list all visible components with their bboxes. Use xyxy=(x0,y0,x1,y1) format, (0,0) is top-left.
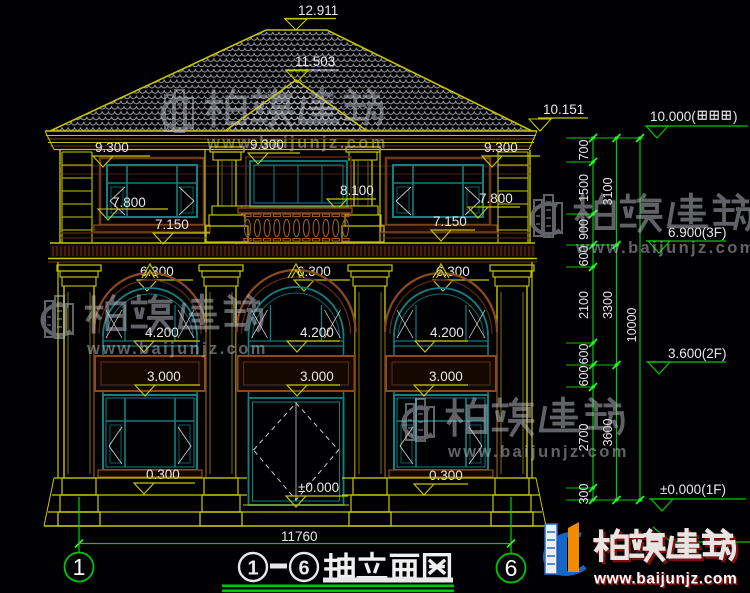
svg-text:6.300: 6.300 xyxy=(436,264,470,279)
svg-text:3300: 3300 xyxy=(601,291,615,319)
svg-text:4.200: 4.200 xyxy=(430,325,464,340)
svg-text:7.150: 7.150 xyxy=(155,217,189,232)
svg-text:3.000: 3.000 xyxy=(429,369,463,384)
svg-text:600: 600 xyxy=(577,344,591,365)
svg-text:7.150: 7.150 xyxy=(433,214,467,229)
svg-text:www.baijunjz.com: www.baijunjz.com xyxy=(86,340,268,358)
svg-text:±0.000: ±0.000 xyxy=(298,480,339,495)
svg-text:1: 1 xyxy=(73,554,86,580)
svg-text:www.baijunjz.com: www.baijunjz.com xyxy=(206,134,388,152)
svg-text:10000: 10000 xyxy=(625,308,639,343)
svg-text:4.200: 4.200 xyxy=(300,325,334,340)
svg-text:7.800: 7.800 xyxy=(112,195,146,210)
svg-text:10.151: 10.151 xyxy=(543,102,584,117)
svg-text:9.300: 9.300 xyxy=(95,140,129,155)
svg-text:700: 700 xyxy=(577,140,591,161)
svg-text:11760: 11760 xyxy=(281,529,318,544)
svg-text:9.300: 9.300 xyxy=(484,140,518,155)
svg-text:3.600(2F): 3.600(2F) xyxy=(668,346,727,361)
svg-text:): ) xyxy=(733,109,738,124)
svg-text:6: 6 xyxy=(505,555,518,581)
svg-text:0.300: 0.300 xyxy=(146,467,180,482)
svg-text:12.911: 12.911 xyxy=(298,3,338,18)
svg-text:8.100: 8.100 xyxy=(340,183,374,198)
svg-text:www.baijunjz.com: www.baijunjz.com xyxy=(593,571,737,588)
svg-text:6: 6 xyxy=(298,558,309,580)
svg-text:±0.000(1F): ±0.000(1F) xyxy=(660,482,726,497)
svg-text:1: 1 xyxy=(247,558,258,580)
svg-text:3.000: 3.000 xyxy=(147,369,181,384)
svg-text:www.baijunjz.com: www.baijunjz.com xyxy=(447,443,629,461)
svg-text:0.300: 0.300 xyxy=(429,468,463,483)
svg-text:7.800: 7.800 xyxy=(479,191,513,206)
svg-text:600: 600 xyxy=(577,366,591,387)
svg-text:3.000: 3.000 xyxy=(300,369,334,384)
svg-text:www.baijunjz.com: www.baijunjz.com xyxy=(575,239,750,257)
svg-text:10.000(: 10.000( xyxy=(650,109,696,124)
svg-text:2100: 2100 xyxy=(577,291,591,319)
svg-text:300: 300 xyxy=(577,484,591,505)
svg-text:11.503: 11.503 xyxy=(295,54,335,69)
